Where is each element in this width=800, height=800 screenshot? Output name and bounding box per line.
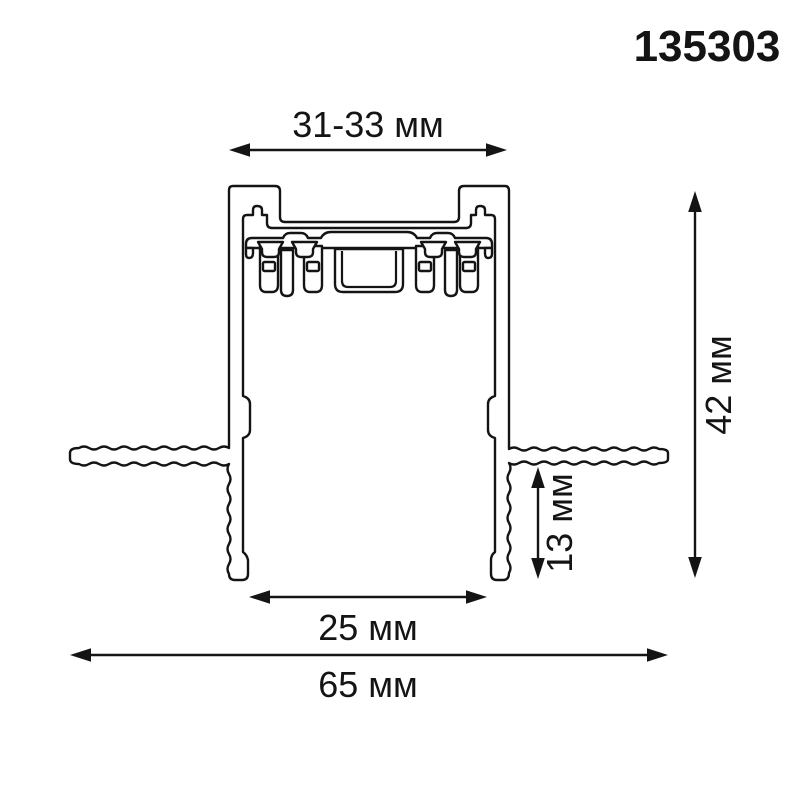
arrow-right-icon (647, 648, 668, 662)
dimension-total-height-label: 42 мм (698, 335, 739, 435)
insert-prong-narrow (281, 250, 293, 296)
insert-prong-window (263, 262, 275, 271)
dimension-total-height: 42 мм (688, 191, 739, 578)
technical-drawing-page: 31-33 мм 42 мм 13 мм 25 мм 65 мм 135303 (0, 0, 800, 800)
arrow-left-icon (70, 648, 91, 662)
insert-prong-window (419, 262, 431, 271)
insert-prong-narrow (445, 250, 457, 296)
dimension-top-width: 31-33 мм (229, 104, 507, 157)
insert-pocket (455, 242, 480, 257)
insert-pocket (258, 242, 283, 257)
dimension-recess-depth-label: 13 мм (539, 473, 580, 573)
arrow-up-icon (688, 191, 702, 212)
dimension-total-width-label: 65 мм (318, 664, 418, 705)
arrow-left-icon (249, 590, 270, 604)
insert-pocket (421, 242, 446, 257)
dimension-top-width-label: 31-33 мм (292, 104, 444, 145)
dimension-opening-width-label: 25 мм (318, 607, 418, 648)
insert-prong-window (463, 262, 475, 271)
insert-prong-window (307, 262, 319, 271)
arrow-right-icon (486, 143, 507, 157)
insert-top-plate (246, 232, 492, 248)
arrow-right-icon (466, 590, 487, 604)
dimension-total-width: 65 мм (70, 648, 668, 705)
arrow-down-icon (688, 557, 702, 578)
dimension-opening-width: 25 мм (249, 590, 487, 648)
product-code: 135303 (634, 22, 781, 71)
insert-end-tab (246, 248, 253, 258)
arrow-left-icon (229, 143, 250, 157)
dimension-recess-depth: 13 мм (531, 467, 580, 579)
insert-pocket (292, 242, 317, 257)
insert-end-tab (485, 248, 492, 258)
profile-cross-section-drawing: 31-33 мм 42 мм 13 мм 25 мм 65 мм 135303 (0, 0, 800, 800)
